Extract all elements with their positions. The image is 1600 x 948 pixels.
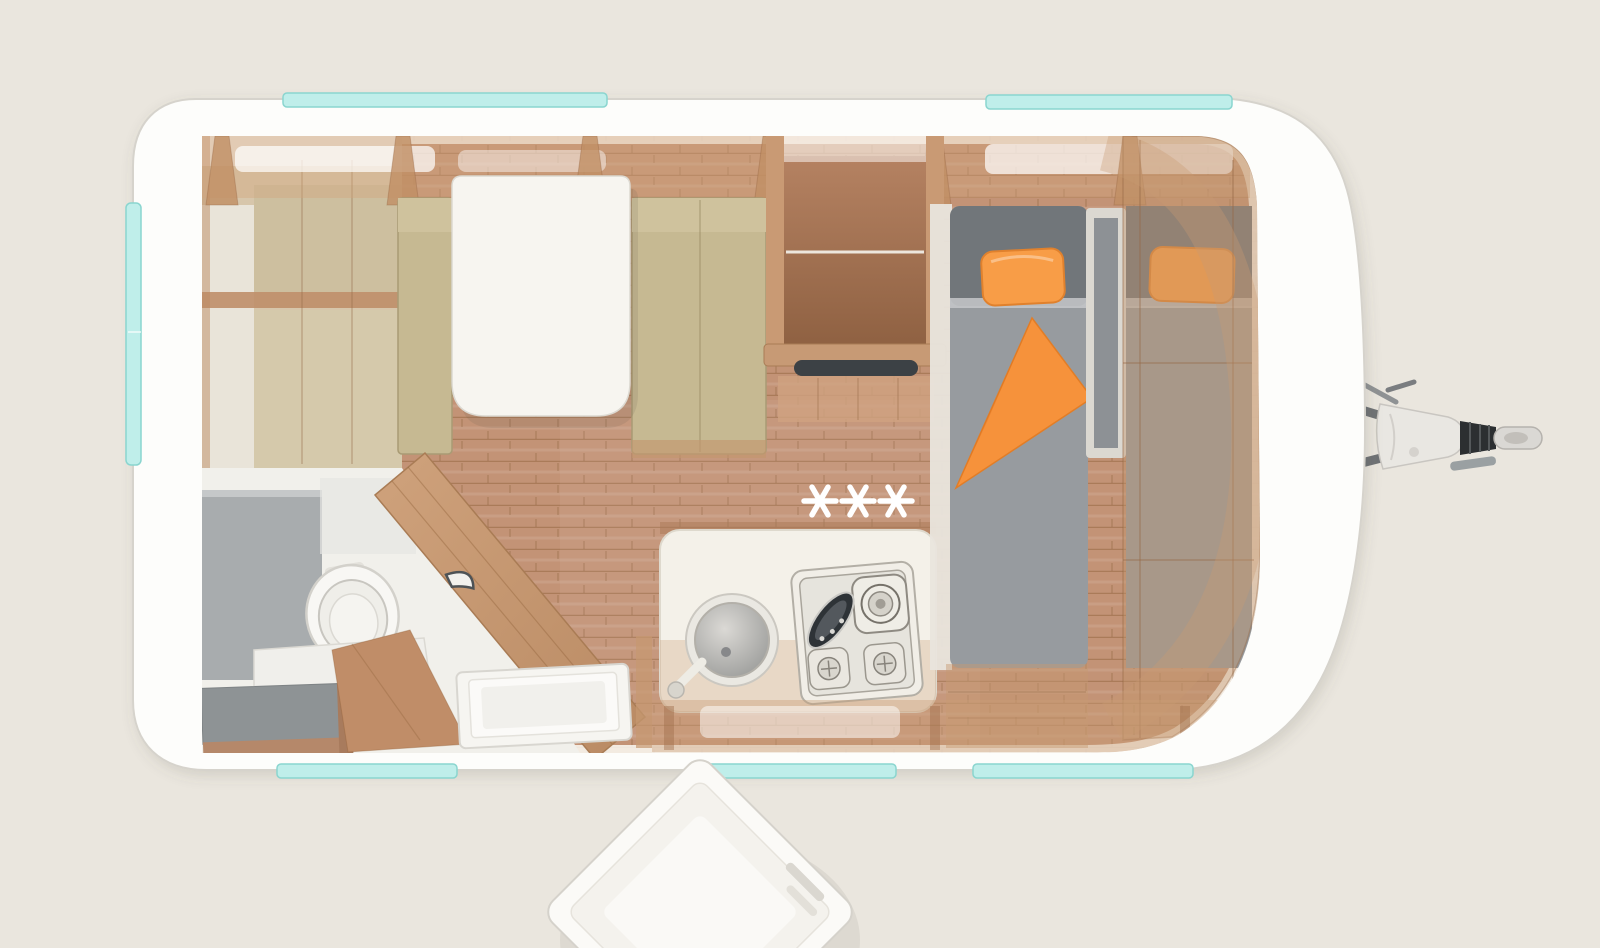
dinette-table: [452, 176, 630, 416]
window-top-right: [986, 95, 1232, 109]
bench-seat-left: [398, 198, 452, 454]
window-rear: [126, 203, 141, 465]
window-bottom-left: [277, 764, 457, 778]
entry-door-open: [542, 754, 859, 948]
sink-drain: [721, 647, 731, 657]
hitch-bracket-icon: [1450, 456, 1497, 471]
shower-post: [636, 636, 652, 748]
tall-cabinet: [764, 136, 946, 422]
sink-bowl: [695, 603, 769, 677]
kitchen-unit: [660, 522, 936, 712]
tow-hitch: [1342, 371, 1542, 471]
hob: [790, 561, 923, 705]
overhead-lockers: [202, 136, 1250, 205]
bench-seat-right: [632, 198, 766, 454]
window-top-left: [283, 93, 607, 107]
caravan-floorplan: [0, 0, 1600, 948]
jockey-crank-icon: [1388, 382, 1414, 390]
window-bottom-mid: [700, 764, 896, 778]
storage-step: [201, 683, 353, 758]
cabinet-handle: [794, 360, 918, 376]
coupling-head-icon: [1377, 404, 1464, 469]
shower-tray: [456, 664, 632, 749]
hitch-bellows-icon: [1460, 421, 1496, 455]
window-bottom-right: [973, 764, 1193, 778]
